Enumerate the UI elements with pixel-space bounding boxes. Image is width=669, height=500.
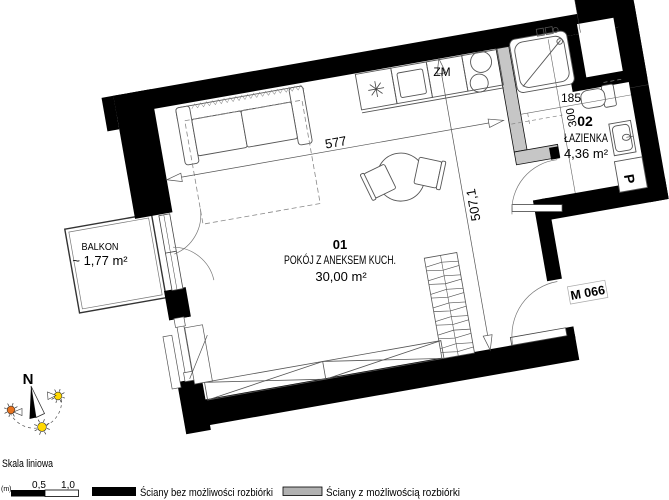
svg-text:30,00 m²: 30,00 m² — [315, 269, 367, 284]
svg-text:BALKON: BALKON — [82, 241, 119, 253]
svg-text:Ściany bez możliwości rozbiórk: Ściany bez możliwości rozbiórki — [140, 486, 273, 499]
svg-text:~ 1,77 m²: ~ 1,77 m² — [72, 253, 128, 268]
svg-text:4,36 m²: 4,36 m² — [564, 146, 609, 161]
svg-text:(m): (m) — [1, 486, 12, 493]
svg-text:185: 185 — [561, 91, 581, 105]
svg-text:ZM: ZM — [433, 65, 450, 79]
svg-text:Skala liniowa: Skala liniowa — [2, 458, 54, 470]
svg-text:1,0: 1,0 — [61, 480, 75, 491]
svg-text:N: N — [23, 371, 34, 388]
svg-text:Ściany z możliwością rozbiórki: Ściany z możliwością rozbiórki — [326, 486, 460, 499]
svg-text:ŁAZIENKA: ŁAZIENKA — [564, 131, 608, 145]
svg-text:POKÓJ Z ANEKSEM KUCH.: POKÓJ Z ANEKSEM KUCH. — [284, 252, 396, 267]
svg-text:0,5: 0,5 — [32, 480, 46, 491]
svg-text:02: 02 — [577, 113, 593, 129]
svg-text:01: 01 — [333, 237, 347, 252]
